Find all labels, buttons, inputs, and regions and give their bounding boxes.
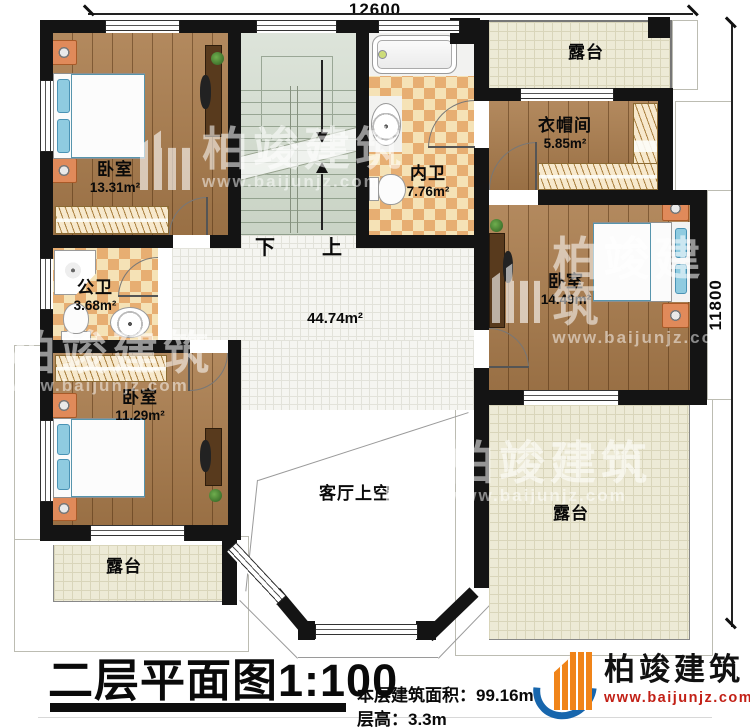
window [105, 20, 180, 33]
wall [40, 20, 53, 80]
room-label-bedroom-bottom-left: 卧室 11.29m² [88, 388, 192, 423]
chair [200, 440, 211, 472]
wall [228, 340, 241, 540]
stair-arrow-head [316, 162, 328, 173]
room-label-bedroom-top-left: 卧室 13.31m² [63, 160, 167, 195]
floor-hall [241, 340, 474, 410]
plan-title: 二层平面图1:100 [48, 644, 398, 709]
wall [228, 20, 241, 248]
wall [356, 235, 489, 248]
window [90, 525, 185, 541]
bed-pillow [57, 424, 70, 455]
floor-height-text: 层高：3.3m [357, 705, 447, 728]
stair-arrow-head [316, 132, 328, 143]
brand-logo: 柏竣建筑 www.baijunjz.com [540, 650, 750, 712]
room-label-bathroom-public: 公卫 3.68m² [58, 278, 132, 313]
wall [356, 20, 369, 248]
window-slider [520, 88, 614, 101]
bay-window [315, 624, 418, 639]
hall-area-label: 44.74m² [295, 310, 375, 327]
chair [503, 251, 513, 283]
room-label-bathroom-inner: 内卫 7.76m² [390, 164, 466, 199]
wall [40, 308, 53, 420]
wall [178, 20, 256, 33]
bay-wall [298, 621, 315, 640]
dimension-width: 12600 [340, 0, 410, 20]
bed-pillow [57, 79, 70, 113]
window [378, 20, 460, 33]
wardrobe [538, 163, 658, 190]
dimension-line-right [731, 25, 733, 627]
nightstand [51, 40, 77, 65]
window [40, 80, 53, 152]
wall [612, 88, 673, 101]
room-label-bedroom-right: 卧室 14.49m² [521, 272, 611, 307]
floor-plan: 卧室 13.31m² 内卫 7.76m² 衣帽间 5.85m² 卧室 14.49… [0, 0, 750, 728]
wall [474, 368, 489, 588]
wall [474, 20, 489, 100]
eave-outline [675, 101, 733, 192]
door-leaf [428, 146, 475, 148]
room-label-terrace-bottom-left: 露台 [96, 557, 152, 577]
room-label-closet: 衣帽间 5.85m² [523, 116, 607, 151]
room-label-terrace-bottom-right: 露台 [543, 504, 599, 524]
brand-name: 柏竣建筑 [604, 650, 750, 690]
wall-pilaster [648, 17, 670, 38]
nightstand [51, 496, 77, 521]
wall [40, 500, 53, 536]
stair-arrow-line [321, 60, 323, 136]
dimension-line-top [88, 13, 693, 15]
stair-up-label: 上 [317, 237, 347, 260]
bed-pillow [57, 459, 70, 490]
window-slider [523, 390, 619, 405]
nightstand [662, 303, 689, 328]
wall [40, 150, 53, 258]
dimension-height: 11800 [706, 275, 726, 335]
window [256, 20, 337, 33]
room-label-terrace-top-right: 露台 [558, 43, 614, 63]
void-diagonal [258, 412, 469, 481]
door-leaf [489, 366, 529, 368]
eave-outline [14, 345, 42, 540]
door-leaf [206, 197, 208, 235]
wall [538, 190, 707, 205]
door-leaf [188, 353, 190, 391]
brand-url: www.baijunjz.com [604, 690, 750, 706]
floor-area-text: 本层建筑面积：99.16m² [357, 681, 539, 706]
bed-pillow [675, 264, 687, 294]
wall [658, 101, 673, 190]
wall [690, 190, 707, 405]
wall [222, 525, 237, 605]
plant [209, 489, 222, 502]
window [40, 258, 53, 310]
wardrobe [55, 206, 169, 234]
room-label-living-void: 客厅上空 [312, 484, 398, 504]
brand-logo-icon [540, 650, 596, 712]
sink [371, 103, 401, 146]
nightstand [51, 393, 77, 418]
wall [40, 235, 173, 248]
bathtub-faucet [378, 50, 387, 59]
chair [200, 75, 211, 109]
eave-outline [672, 20, 698, 90]
bed-pillow [675, 228, 687, 258]
bed-duvet [71, 74, 145, 158]
plant [490, 219, 503, 232]
wall [474, 148, 489, 330]
bed-duvet [71, 419, 145, 497]
stair-arrow-line [321, 174, 323, 230]
title-underline [50, 703, 346, 712]
stair-down-label: 下 [250, 237, 280, 260]
wall [40, 340, 190, 353]
desk [489, 233, 505, 328]
wardrobe [55, 355, 167, 382]
plant [211, 52, 224, 65]
bay-wall [416, 621, 436, 640]
bed-pillow [57, 119, 70, 153]
window [40, 420, 53, 502]
